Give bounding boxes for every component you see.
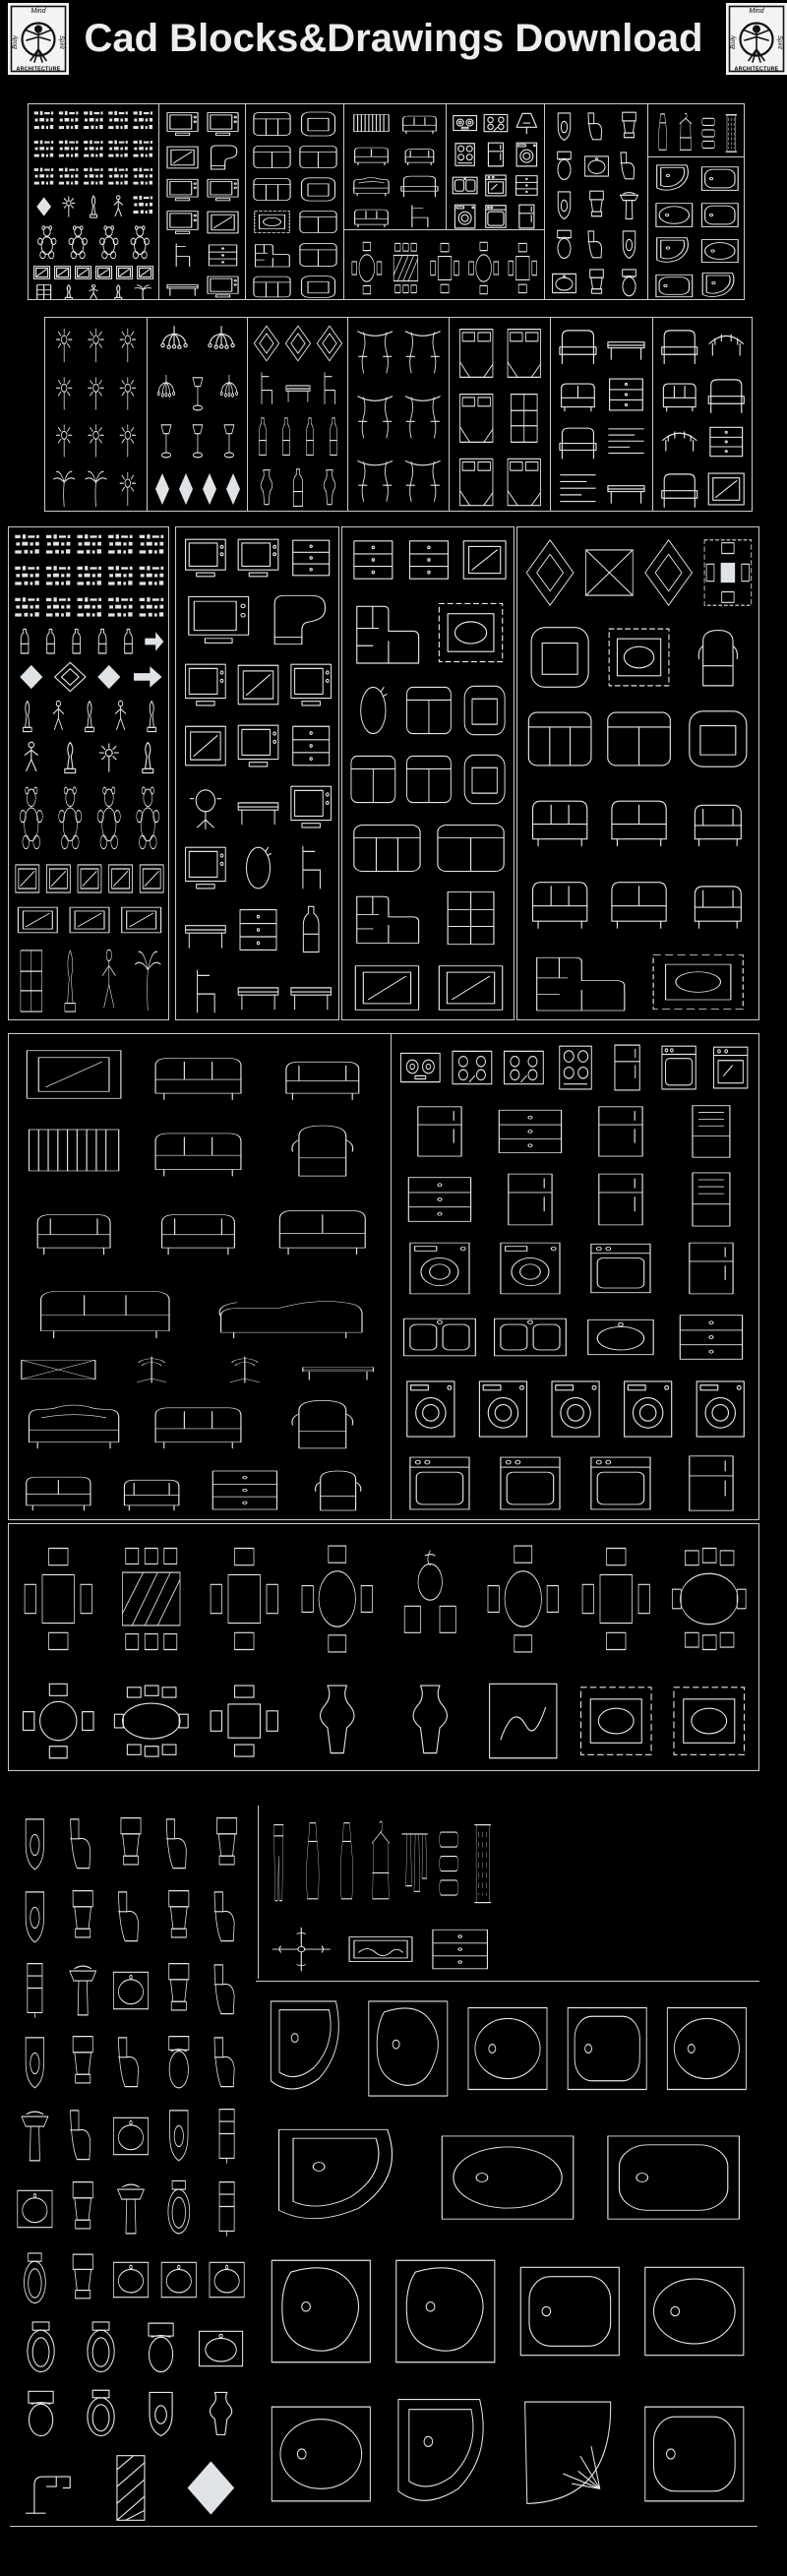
misc-decor-panel: [8, 526, 169, 1020]
corner-drawing: [357, 606, 419, 663]
curt-drawing: [405, 397, 440, 438]
sofa3f-drawing: [155, 1408, 241, 1448]
frame-drawing: [439, 966, 502, 1011]
sofa3f-drawing: [155, 1058, 241, 1099]
framed-drawing: [645, 540, 693, 605]
washer-drawing: [696, 1381, 744, 1437]
tiny-drawing: [133, 168, 152, 185]
tubc-drawing: [657, 165, 689, 190]
tallcab-drawing: [693, 1173, 730, 1226]
urinal-drawing: [26, 1892, 43, 1942]
flower-drawing: [89, 329, 104, 362]
fancy-drawing: [354, 178, 389, 196]
bedf-drawing: [560, 331, 596, 364]
lamps-chandeliers: [147, 318, 247, 511]
statue-drawing: [91, 196, 97, 217]
sanitary-fixtures-panel: [8, 1806, 254, 2527]
armchf-drawing: [695, 887, 741, 928]
toileto-drawing: [28, 2322, 54, 2372]
sinkped-drawing: [70, 1966, 96, 2015]
sofa-kitchen-collage: [8, 1033, 759, 1520]
bench-drawing: [238, 988, 278, 1010]
faucet-drawing: [26, 2477, 70, 2513]
flower-drawing: [56, 425, 72, 457]
teddy-drawing: [100, 226, 118, 259]
curtains: [347, 318, 449, 511]
washer-drawing: [479, 1381, 526, 1437]
sink1-drawing: [553, 274, 576, 292]
dining-tables: [9, 1524, 758, 1770]
tiny-drawing: [15, 566, 38, 584]
thatch-drawing: [122, 1549, 180, 1650]
tiny-drawing: [84, 168, 103, 185]
statue-drawing: [65, 285, 72, 299]
frame-drawing: [122, 907, 161, 933]
cab-drawing: [293, 726, 330, 766]
tubr-drawing: [701, 167, 738, 191]
diam-drawing: [20, 665, 42, 689]
dress-drawing: [307, 1823, 320, 1899]
tubf-drawing: [272, 2260, 370, 2361]
window-drawing: [21, 951, 42, 1012]
flower-drawing: [56, 378, 72, 409]
lampf-drawing: [193, 378, 203, 410]
vase-drawing: [261, 470, 272, 505]
mini-misc-blocks: [29, 104, 158, 299]
toilets-drawing: [71, 1819, 91, 1869]
fridge-drawing: [599, 1107, 642, 1156]
tiny-drawing: [46, 597, 70, 616]
electronics-panel: [175, 526, 339, 1020]
sofa2f-drawing: [612, 801, 666, 845]
xsofa-drawing: [586, 550, 634, 595]
fridge-drawing: [418, 1107, 461, 1156]
logo-text-spirit: Spirit: [58, 35, 64, 49]
wing-drawing: [292, 1400, 353, 1448]
tubo-drawing: [656, 204, 693, 227]
art-drawing: [490, 1684, 557, 1757]
frame-drawing: [27, 1051, 121, 1098]
armchf-drawing: [286, 1062, 359, 1099]
logo-text-architecture: ARCHITECTURE: [735, 67, 779, 73]
chand-drawing: [220, 375, 238, 397]
sinkped-drawing: [620, 193, 637, 219]
statue-drawing: [65, 951, 76, 1012]
corner-drawing: [357, 896, 419, 943]
toileto-drawing: [88, 2322, 114, 2372]
statue-drawing: [86, 702, 94, 732]
teddy-drawing: [69, 226, 87, 259]
tiny-drawing: [77, 534, 100, 553]
wardrobe-clothes-panel: [258, 1806, 502, 1979]
tallcab-drawing: [693, 1106, 730, 1158]
tiny-drawing: [133, 196, 152, 214]
cistern-drawing: [219, 2182, 234, 2237]
armchf-drawing: [405, 150, 434, 165]
tiny-drawing: [108, 597, 132, 616]
sink2-drawing: [453, 177, 477, 194]
tsq-drawing: [25, 1549, 91, 1650]
armchf-drawing: [124, 1480, 178, 1510]
sofa2f-drawing: [355, 148, 389, 165]
sink1-drawing: [113, 2262, 148, 2297]
hatchbox-drawing: [117, 2456, 145, 2521]
sofa3f-drawing: [663, 384, 696, 411]
beds-awnings: [652, 318, 752, 511]
curt-drawing: [405, 460, 440, 501]
fancy-drawing: [29, 1405, 118, 1448]
scroll-drawing: [474, 1825, 491, 1903]
person-drawing: [114, 196, 122, 216]
architecture-logo-right: Mind Body Spirit ARCHITECTURE: [726, 3, 787, 75]
statue-drawing: [23, 702, 31, 732]
vase-drawing: [321, 1686, 354, 1753]
vase-drawing: [413, 1686, 447, 1753]
cab-drawing: [408, 1178, 470, 1222]
scroll-drawing: [726, 115, 737, 152]
detail-drawing: [561, 475, 595, 502]
urinal-drawing: [623, 231, 635, 259]
frame-drawing: [138, 267, 153, 279]
tubf-drawing: [369, 2001, 448, 2096]
teddy-drawing: [20, 787, 42, 848]
urinal-drawing: [150, 2392, 172, 2435]
sofa2p-drawing: [438, 825, 504, 871]
rug-drawing: [439, 603, 502, 661]
trnd-drawing: [488, 1546, 559, 1652]
hob2-drawing: [454, 116, 477, 131]
trnd-drawing: [302, 1546, 373, 1652]
sinkped-drawing: [118, 2184, 145, 2234]
person-drawing: [90, 284, 97, 298]
cab-drawing: [209, 245, 236, 266]
frame-drawing: [16, 865, 39, 892]
toiletf-drawing: [73, 2254, 92, 2299]
decor-collage: [8, 526, 759, 1020]
tiny-drawing: [34, 168, 54, 185]
oven-drawing: [486, 175, 506, 196]
tiny-drawing: [34, 141, 54, 157]
dress-drawing: [340, 1823, 353, 1899]
sofa2p-drawing: [254, 146, 290, 167]
wing-drawing: [698, 631, 737, 686]
lampf-drawing: [161, 425, 171, 458]
toiletf-drawing: [217, 1818, 237, 1865]
cab-drawing: [354, 541, 393, 579]
diam-drawing: [155, 473, 169, 505]
mini-dining-tables: [343, 229, 544, 299]
arrow-drawing: [134, 666, 162, 688]
tiny-drawing: [46, 534, 70, 553]
architecture-logo-left: Mind Body Spirit ARCHITECTURE: [8, 3, 69, 75]
chairf-drawing: [325, 373, 334, 404]
frame-drawing: [109, 865, 133, 892]
cab-drawing: [433, 1930, 488, 1969]
towels-drawing: [440, 1832, 458, 1895]
hob4-drawing: [453, 1051, 492, 1083]
rug-drawing: [653, 954, 743, 1009]
lampf-drawing: [193, 425, 203, 458]
toiletf-drawing: [73, 2037, 92, 2083]
chairf-drawing: [412, 206, 428, 227]
window-drawing: [448, 891, 494, 944]
teddy-drawing: [59, 787, 82, 848]
sink1-drawing: [18, 2190, 52, 2227]
tubr-drawing: [520, 2267, 619, 2355]
toiletp-drawing: [558, 152, 572, 179]
frame-drawing: [186, 726, 226, 766]
frame-drawing: [18, 907, 57, 933]
bedf-drawing: [708, 380, 744, 413]
bench-drawing: [608, 342, 644, 360]
sofa2f-drawing: [562, 384, 595, 411]
diam-drawing: [226, 473, 240, 505]
toiletf-drawing: [73, 2182, 92, 2229]
tubo-drawing: [468, 2008, 547, 2090]
sink1-drawing: [588, 1319, 653, 1354]
rail-drawing: [401, 1834, 427, 1891]
chairf-drawing: [176, 244, 189, 267]
tubo-drawing: [701, 240, 738, 263]
armchp-drawing: [464, 755, 505, 803]
pants-drawing: [273, 1825, 283, 1901]
bottle-drawing: [21, 629, 29, 653]
xsofa-drawing: [22, 1360, 95, 1379]
dress-drawing: [658, 114, 666, 150]
mini-sofa-plans: [245, 104, 343, 299]
fire-drawing: [349, 1937, 412, 1962]
hobg-drawing: [560, 1046, 592, 1089]
sofa-plan-panel: [341, 526, 515, 1020]
tv-drawing: [189, 596, 249, 643]
bedp-drawing: [460, 459, 493, 505]
sofa3f-drawing: [403, 116, 437, 134]
toiletf-drawing: [73, 1891, 92, 1937]
hang-drawing: [680, 113, 692, 150]
hob2-drawing: [400, 1053, 440, 1081]
sofa2p-drawing: [608, 712, 671, 766]
armchp-drawing: [302, 178, 335, 201]
logo-text-mind: Mind: [749, 8, 764, 15]
tubr-drawing: [568, 2008, 646, 2090]
tubr-drawing: [701, 204, 738, 227]
frame-drawing: [238, 665, 278, 705]
bench-drawing: [186, 926, 226, 949]
washer-drawing: [516, 143, 536, 166]
tv-drawing: [186, 539, 226, 577]
armchp-drawing: [464, 686, 505, 734]
chand-drawing: [209, 327, 234, 349]
rack-drawing: [230, 1357, 259, 1383]
bench-drawing: [286, 386, 310, 401]
toilets-drawing: [588, 113, 602, 140]
toiletf-drawing: [623, 112, 636, 138]
sofa-elevation-panel: [9, 1034, 388, 1519]
toiletf-drawing: [590, 270, 604, 293]
bench-drawing: [303, 1368, 374, 1380]
bedp-drawing: [460, 330, 493, 378]
sink2-drawing: [404, 1319, 476, 1356]
sinkped-drawing: [22, 2112, 48, 2161]
sofa2p-drawing: [407, 756, 452, 802]
toilets-drawing: [71, 2111, 91, 2160]
sink1-drawing: [585, 156, 609, 176]
tv-drawing: [208, 179, 238, 201]
fridge-drawing: [599, 1174, 642, 1225]
diam-drawing: [179, 473, 193, 505]
palm-drawing: [86, 471, 106, 506]
frame-drawing: [46, 865, 70, 892]
bottle-drawing: [47, 629, 55, 653]
sink2-drawing: [495, 1319, 567, 1356]
washer-drawing: [454, 205, 474, 228]
cab-drawing: [212, 1471, 276, 1509]
bathroom-collage: [8, 1806, 759, 2527]
sofa2p-drawing: [407, 687, 452, 733]
teddy-drawing: [38, 226, 56, 259]
toilets-drawing: [214, 1892, 234, 1941]
tv-drawing: [238, 725, 278, 767]
tv-drawing: [238, 539, 278, 577]
sofa3f-drawing: [155, 1134, 241, 1176]
toval-drawing: [672, 1549, 746, 1650]
armchf-drawing: [37, 1215, 110, 1255]
tiny-drawing: [15, 534, 38, 553]
curt-drawing: [358, 332, 393, 373]
corner-drawing: [537, 957, 625, 1011]
washer-drawing: [410, 1243, 469, 1294]
urinal-drawing: [558, 192, 570, 219]
tubc-drawing: [398, 2400, 483, 2501]
fridge-drawing: [690, 1243, 733, 1294]
chairf-drawing: [303, 846, 321, 889]
statue-drawing: [148, 702, 156, 732]
fridge-drawing: [519, 205, 534, 228]
hob4-drawing: [505, 1051, 544, 1083]
detail-drawing: [609, 429, 643, 454]
mini-sofa-elevations: [343, 104, 446, 229]
framed-drawing: [254, 326, 278, 361]
curt-drawing: [358, 397, 393, 438]
tubr-drawing: [645, 2407, 744, 2501]
dw-drawing: [662, 1046, 696, 1089]
palm-drawing: [54, 471, 75, 506]
washer-drawing: [552, 1381, 599, 1437]
flower-drawing: [56, 329, 72, 362]
tubo-drawing: [272, 2407, 370, 2501]
tiny-drawing: [108, 566, 132, 584]
mirror-drawing: [361, 687, 387, 733]
frame-drawing: [70, 907, 109, 933]
teddy-drawing: [131, 226, 149, 259]
curt-drawing: [358, 460, 393, 501]
oven-drawing: [714, 1047, 748, 1088]
bed-elevations: [550, 318, 652, 511]
arrow-drawing: [145, 632, 163, 650]
cistern-drawing: [28, 1964, 42, 2018]
dw-drawing: [410, 1457, 469, 1509]
piano-drawing: [274, 595, 325, 644]
bottle-drawing: [282, 418, 289, 456]
bedf-drawing: [662, 331, 697, 364]
tv-drawing: [208, 113, 238, 136]
toilets-drawing: [118, 2038, 138, 2087]
armchp-drawing: [302, 276, 335, 298]
framed-drawing: [317, 326, 341, 361]
tv-drawing: [186, 664, 226, 705]
bottle-drawing: [306, 418, 313, 456]
fridge-drawing: [509, 1174, 552, 1225]
flower-drawing: [89, 378, 104, 409]
bedf-drawing: [560, 428, 596, 459]
sink1-drawing: [210, 2262, 244, 2297]
cab-drawing: [610, 379, 643, 410]
bench-drawing: [291, 988, 332, 1010]
frame-drawing: [463, 541, 506, 579]
bottle-drawing: [125, 629, 133, 653]
tiny-drawing: [84, 111, 103, 129]
bottle-drawing: [259, 418, 266, 456]
diam-drawing: [36, 197, 51, 215]
bottle-drawing: [293, 469, 302, 507]
frame-drawing: [117, 267, 133, 279]
sofa3p-drawing: [254, 113, 290, 136]
toilets-drawing: [214, 2038, 234, 2087]
sofa-dining-panel: [516, 526, 759, 1020]
tv-drawing: [186, 847, 226, 889]
tv-drawing: [167, 179, 198, 201]
chairf-drawing: [198, 970, 215, 1012]
trnd-drawing: [23, 1684, 93, 1757]
tiny-drawing: [108, 168, 128, 185]
flower-drawing: [89, 425, 104, 457]
hood-drawing: [516, 113, 536, 133]
diam-drawing: [97, 665, 120, 689]
rug-drawing: [609, 629, 669, 686]
tv-drawing: [167, 113, 198, 136]
toilets-drawing: [118, 1892, 138, 1941]
flower-drawing: [63, 197, 75, 216]
tiny-drawing: [34, 111, 54, 129]
toiletp-drawing: [29, 2391, 53, 2435]
tbistro-drawing: [404, 1551, 455, 1632]
tiny-drawing: [108, 534, 132, 553]
dining-tables-panel: [8, 1523, 759, 1771]
framed-drawing: [526, 540, 574, 605]
toiletp-drawing: [169, 2037, 189, 2088]
tiny-drawing: [133, 141, 152, 157]
bedp-drawing: [460, 395, 493, 443]
frame-drawing: [167, 147, 198, 168]
sofa3f-drawing: [533, 883, 587, 929]
cab-drawing: [240, 910, 276, 951]
corner-drawing: [256, 245, 290, 267]
tiny-drawing: [46, 566, 70, 584]
tubc-drawing: [271, 2001, 338, 2089]
toval-drawing: [114, 1686, 188, 1756]
trnd-drawing: [469, 242, 499, 293]
toileto-drawing: [88, 2390, 114, 2435]
dw-drawing: [486, 206, 506, 228]
hob4-drawing: [484, 114, 508, 131]
sofa2p-drawing: [351, 756, 395, 802]
urinal-drawing: [170, 2111, 188, 2161]
fridge-drawing: [615, 1045, 639, 1090]
wing-drawing: [316, 1471, 361, 1510]
teddy-drawing: [97, 787, 120, 848]
tv-drawing: [208, 276, 238, 297]
dw-drawing: [501, 1457, 560, 1509]
